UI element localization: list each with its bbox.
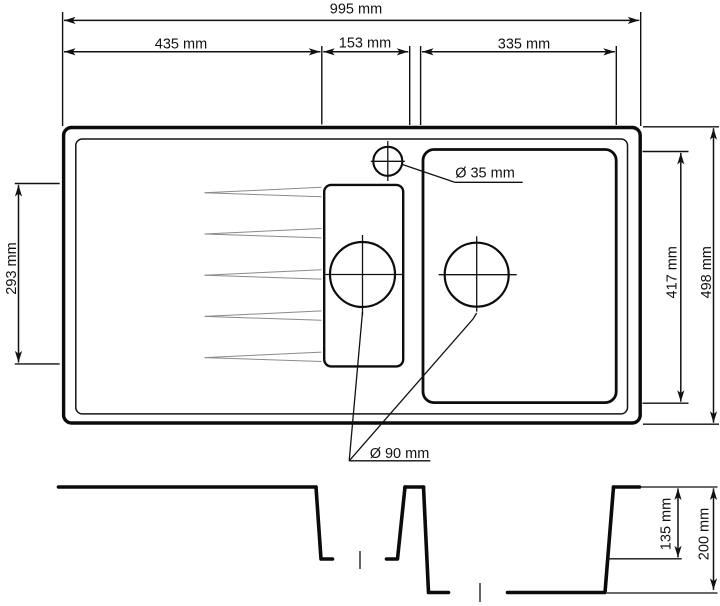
svg-text:Ø 35 mm: Ø 35 mm xyxy=(455,166,515,182)
svg-text:995 mm: 995 mm xyxy=(330,2,382,18)
svg-text:435 mm: 435 mm xyxy=(155,36,207,52)
svg-text:200 mm: 200 mm xyxy=(697,508,713,560)
svg-text:Ø 90 mm: Ø 90 mm xyxy=(370,446,430,462)
svg-text:153 mm: 153 mm xyxy=(339,35,391,51)
svg-text:135 mm: 135 mm xyxy=(659,498,675,550)
svg-text:417 mm: 417 mm xyxy=(664,246,680,298)
svg-text:498 mm: 498 mm xyxy=(699,246,715,298)
svg-text:335 mm: 335 mm xyxy=(498,36,550,52)
svg-text:293 mm: 293 mm xyxy=(4,242,20,294)
